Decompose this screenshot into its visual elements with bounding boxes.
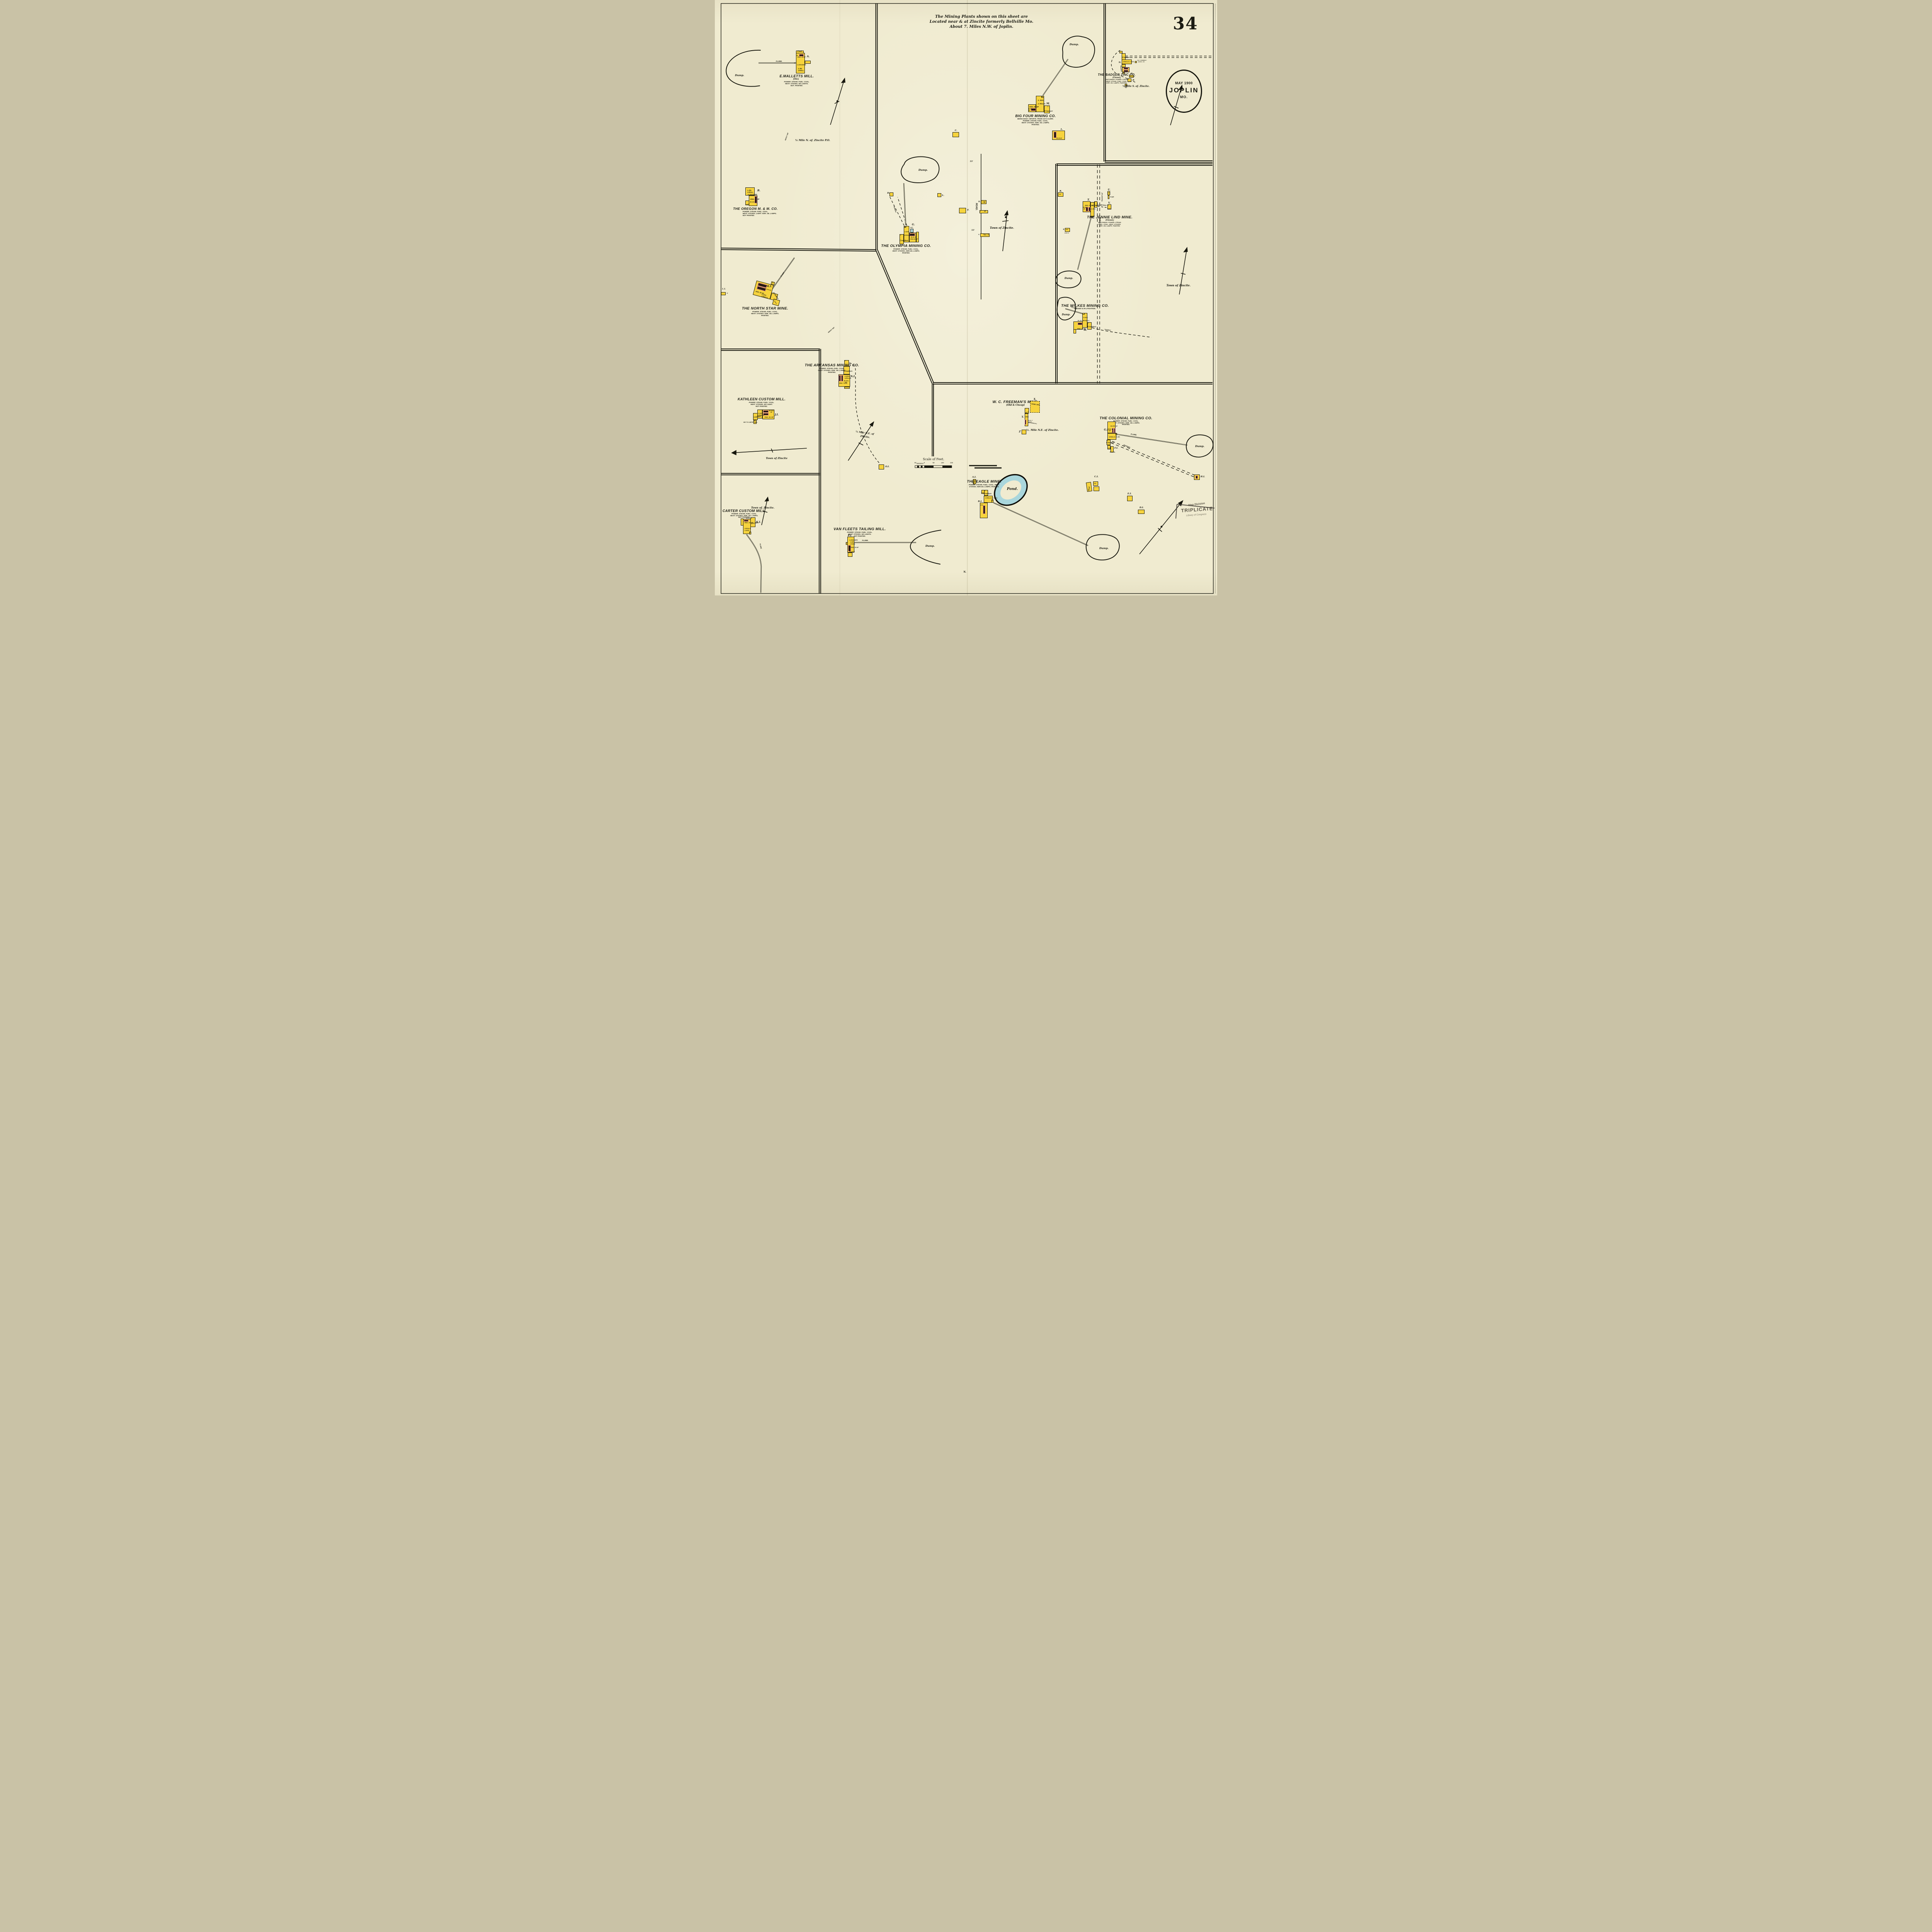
dim-label: 40' bbox=[770, 412, 772, 413]
dim-label: IR.CH.30' bbox=[849, 551, 855, 553]
machinery-label: ENG.60.HP bbox=[910, 239, 918, 240]
scale-tick: 150 bbox=[950, 462, 953, 464]
northstar-title: THE NORTH STAR MINE. bbox=[742, 307, 788, 311]
machinery-label: 2.ROLLS. 2.JIGS. bbox=[985, 497, 998, 499]
boiler bbox=[841, 375, 843, 381]
crusher-label: Crusher bbox=[1044, 111, 1053, 112]
building-letter: D. bbox=[887, 192, 890, 195]
dim-label: 60 bbox=[1116, 434, 1117, 435]
building-letter: N. bbox=[1119, 62, 1121, 64]
machinery-label: 3.ROLLS. 2.JIGS. bbox=[1123, 61, 1134, 63]
machinery-label: 1.ROLL. bbox=[850, 544, 855, 545]
site-info: NOT PAINTED. bbox=[743, 215, 755, 216]
crusher-label: Crusher. bbox=[1088, 326, 1097, 328]
building-letter: S bbox=[1063, 229, 1065, 231]
coal-label: Coal. bbox=[798, 51, 803, 53]
building-letter: D.I. bbox=[1139, 507, 1144, 509]
story-label: 2 bbox=[985, 490, 985, 492]
building-letter: H. bbox=[978, 234, 980, 235]
building-f bbox=[959, 208, 966, 213]
distance-note: ¼ Mile N. of. Zincite P.O. bbox=[795, 139, 830, 142]
building-letter: X. bbox=[1034, 398, 1036, 401]
building-letter: J. bbox=[980, 211, 981, 212]
dump-label: Dump. bbox=[1099, 547, 1109, 550]
office-label: Off. bbox=[983, 201, 986, 203]
boiler bbox=[983, 505, 985, 514]
town-label: Town of Zincite. bbox=[1167, 284, 1191, 287]
site-info: PAINTED. bbox=[828, 372, 836, 373]
pump-label: PUMP. bbox=[1110, 197, 1114, 198]
dump-label: Dump. bbox=[735, 74, 744, 77]
machinery-label: 2.JIGS. bbox=[745, 530, 750, 532]
dim-label: IR.CH. 35' bbox=[911, 237, 917, 238]
machinery-label: IR.CH.25' bbox=[750, 202, 757, 203]
building-d bbox=[889, 192, 893, 196]
building-ei bbox=[1127, 496, 1133, 501]
site-info: KER. OIL LAMPS. PAINTED. bbox=[1106, 83, 1127, 84]
building-letter: D. bbox=[727, 293, 728, 294]
dim-label: 60' bbox=[992, 500, 993, 502]
distance-note: ¼ Mile S. of. Zincite. bbox=[1122, 85, 1150, 88]
building-letter: M.I. bbox=[766, 285, 772, 288]
building-letter: L. bbox=[942, 195, 944, 197]
boiler bbox=[1025, 420, 1026, 425]
building-letter: E.I. bbox=[1128, 493, 1132, 495]
dim-label: 30' bbox=[796, 55, 798, 56]
building-letter: V. bbox=[1108, 202, 1111, 204]
building-badger-mid bbox=[1122, 64, 1126, 67]
sanborn-sheet: The Mining Plants shown on this sheet ar… bbox=[715, 0, 1217, 595]
scale-title: Scale of Feet. bbox=[923, 458, 944, 461]
machinery-label: 1.ROLL. bbox=[798, 70, 804, 71]
boiler bbox=[839, 375, 841, 381]
building-letter: B.I. bbox=[978, 501, 982, 503]
building-letter: T. bbox=[1087, 199, 1090, 201]
bigfour-title: BIG FOUR MINING CO. bbox=[1015, 114, 1056, 118]
boiler bbox=[744, 520, 748, 522]
machinery-label: ENG. 40. HP bbox=[1029, 106, 1039, 108]
scale-tick: 0 bbox=[924, 462, 925, 464]
machinery-label: 1.CRUSHER. bbox=[748, 194, 757, 196]
machinery-label: 3.ROLLS. bbox=[904, 235, 911, 236]
map-linework bbox=[715, 0, 1217, 595]
building-letter: P. bbox=[1133, 80, 1134, 82]
boiler bbox=[1078, 323, 1082, 325]
story-label: 2 bbox=[1108, 205, 1109, 206]
building-vanfleets-annex bbox=[848, 553, 852, 557]
town-label: Town of Zincite. bbox=[990, 226, 1014, 229]
dump-label: Dump. bbox=[1065, 277, 1073, 280]
dim-label: 60' bbox=[904, 226, 906, 228]
oval-date: MAY 1900 bbox=[1175, 82, 1193, 85]
building-letter: A.I. bbox=[972, 476, 976, 479]
building-letter: F. bbox=[967, 209, 969, 212]
vanfleets-title: VAN FLEETS TAILING MILL. bbox=[833, 527, 886, 531]
wilkes-sub: CLOSED & IN LITIGATION. bbox=[1074, 308, 1095, 310]
machinery-label: 2.JIGS. bbox=[1083, 317, 1088, 319]
machinery-label: 1.CRUSHER. bbox=[797, 64, 806, 66]
north-arrows bbox=[732, 78, 1187, 554]
machinery-label: 3.ROLLS. 2.JIG. bbox=[1109, 436, 1120, 438]
malletts-title: E.MALLETTS MILL. bbox=[780, 75, 814, 78]
blacksmith-label: Bl.Sm. bbox=[1110, 451, 1116, 453]
dim-label: 40' bbox=[750, 532, 751, 534]
dump-label: Dump. bbox=[1070, 43, 1079, 46]
vacant-store-label: Vac. S. bbox=[983, 234, 989, 236]
office-label: OFF. bbox=[1066, 229, 1068, 230]
dim-label: IR.CH.30' bbox=[1056, 138, 1062, 139]
story-label: 2 bbox=[1048, 106, 1048, 107]
building-letter: R. bbox=[1060, 190, 1062, 193]
carter-title: CARTER CUSTOM MILL. bbox=[723, 509, 766, 513]
crusher-label: Crusher. bbox=[1106, 442, 1114, 444]
dim-label: 40' bbox=[794, 63, 796, 64]
machinery-label: 2.ROLLS. bbox=[1083, 320, 1090, 322]
building-l2 bbox=[937, 193, 941, 197]
building-oi bbox=[879, 464, 884, 469]
site-info: NOT PAINTED. bbox=[755, 406, 767, 407]
distance-note: ½. Mile N.E. of Zincite. bbox=[1026, 429, 1059, 432]
sheet-note-line: About 7. Miles N.W. of Joplin. bbox=[950, 25, 1014, 29]
oval-state: MO. bbox=[1180, 95, 1188, 99]
building-wilkes-hoist bbox=[1082, 313, 1085, 315]
town-label: Town of. Zincite. bbox=[751, 507, 774, 509]
olympia-title: THE OLYMPIA MINING CO. bbox=[881, 244, 931, 248]
dim-label: IR.CH'S. 30' bbox=[1123, 71, 1130, 73]
story-label: 2 bbox=[1095, 202, 1095, 203]
boiler bbox=[1124, 68, 1128, 70]
building-letter: L. bbox=[1061, 129, 1063, 131]
machinery-label: ENG. 25 HP bbox=[798, 57, 806, 58]
flume-label: FLUME. bbox=[862, 540, 868, 541]
story-label: 2 bbox=[1107, 440, 1108, 441]
crusher-label: Crusher. bbox=[983, 493, 992, 495]
story-label: 2 bbox=[900, 235, 901, 236]
blacksmith-label: Bl.Sm. bbox=[1130, 76, 1135, 77]
scale-tick: 100 bbox=[941, 462, 944, 464]
machinery-label: 1.ROLL. bbox=[747, 192, 753, 193]
scale-bar bbox=[915, 466, 952, 468]
scale-tick: 50 bbox=[932, 462, 934, 464]
engraver-mark: N. bbox=[963, 571, 966, 573]
town-label: Town of Zincite bbox=[766, 457, 787, 460]
dim-label: 40' bbox=[846, 543, 847, 544]
boiler bbox=[1196, 476, 1198, 479]
building-letter: J.I. bbox=[775, 413, 779, 416]
kathleen-title: KATHLEEN CUSTOM MILL. bbox=[738, 398, 786, 401]
dwelling-label: D bbox=[984, 211, 986, 213]
building-letter: C.I. bbox=[1094, 476, 1099, 478]
building-letter: F.I. bbox=[1114, 447, 1118, 450]
building-misc bbox=[1094, 486, 1099, 491]
boiler bbox=[1088, 207, 1090, 211]
boiler bbox=[1114, 428, 1116, 433]
building-vacant-gasoline-house bbox=[1135, 61, 1137, 63]
machinery-label: ENG. bbox=[1108, 192, 1111, 194]
sheet-number: 34 bbox=[1173, 15, 1198, 32]
building-letter: L.I. bbox=[722, 288, 726, 290]
distance-note: 880' TO CARTER MILL. bbox=[743, 422, 758, 423]
building-letter: H.I. bbox=[1201, 476, 1205, 478]
building-letter: U. bbox=[1108, 189, 1111, 191]
planked-label: (PLANKED) bbox=[1101, 193, 1103, 201]
building-c bbox=[952, 132, 959, 137]
arkansas-title: THE ARKANSAS MINING CO. bbox=[805, 364, 859, 367]
building-malletts-wing bbox=[805, 61, 811, 64]
oval-city: JOPLIN bbox=[1169, 87, 1199, 94]
crusher-label: Crusher bbox=[1122, 57, 1129, 59]
water-tank-label: W.T. bbox=[910, 227, 913, 229]
story-label: 2 bbox=[845, 361, 845, 362]
oregon-title: THE OREGON M. & M. CO. bbox=[733, 207, 778, 211]
dim-label: 60' bbox=[772, 282, 774, 284]
building-letter: W. bbox=[1083, 328, 1087, 331]
tramway-label: TRAMWAY bbox=[1120, 65, 1122, 72]
building-letter: O. bbox=[1131, 73, 1133, 75]
machinery-label: HP bbox=[1109, 430, 1111, 432]
building-li bbox=[721, 292, 726, 295]
shaft-label: SHAFT. bbox=[1108, 208, 1112, 209]
water-tank bbox=[910, 229, 913, 233]
shaft-label: SHAFT. bbox=[1128, 81, 1131, 82]
machinery-label: ENG. 20 HP bbox=[851, 547, 859, 549]
building-letter: M. bbox=[1046, 102, 1050, 105]
machinery-label: ENG. bbox=[1026, 417, 1029, 418]
machinery-label: 2. ROLLS. bbox=[1038, 103, 1046, 105]
site-info: STOVES. KER.OIL LAMPS. PAINTED. bbox=[969, 486, 999, 488]
dump-label: Dump. bbox=[918, 169, 928, 172]
machinery-label: ENG. bbox=[981, 505, 983, 506]
flume-label: FLUME. bbox=[776, 61, 782, 62]
building-di bbox=[1138, 510, 1145, 514]
building-z bbox=[1022, 430, 1026, 434]
boiler bbox=[1054, 132, 1056, 138]
building-letter: B. bbox=[757, 189, 760, 192]
dump-label: Dump. bbox=[1195, 445, 1204, 448]
dim-label: 55' bbox=[971, 230, 975, 231]
machinery-label: 2.JIGS. bbox=[905, 231, 910, 233]
building-letter: G. bbox=[912, 223, 915, 226]
building-arkansas-tab bbox=[844, 387, 850, 389]
eagle-title: THE EAGLE MINE. bbox=[967, 480, 1001, 484]
story-label: 2 bbox=[1088, 323, 1089, 324]
boiler bbox=[848, 545, 851, 551]
machinery-label: 2. JIGS. bbox=[1038, 100, 1044, 101]
site-info: PAINTED. bbox=[902, 252, 910, 254]
building-letter: Z bbox=[1019, 431, 1020, 433]
site-info: NOT. PAINTED. bbox=[791, 85, 803, 87]
road-label: ROAD. bbox=[975, 203, 978, 210]
pond-label: Pond. bbox=[1007, 488, 1018, 491]
building-letter: K.I. bbox=[756, 521, 761, 524]
site-info: PAINTED. bbox=[1122, 424, 1130, 425]
freeman-sub: (Old & Cheap) bbox=[1006, 404, 1025, 406]
dim-label: 30' bbox=[1029, 110, 1030, 111]
dim-label: 30' bbox=[1083, 209, 1085, 210]
building-letter: O.I. bbox=[885, 466, 889, 468]
oil-label: OIL bbox=[1059, 194, 1061, 195]
building-u-pump bbox=[1108, 195, 1109, 199]
dim-label: IR.CH. 20' bbox=[746, 518, 752, 519]
story-label: 2 bbox=[1128, 79, 1129, 80]
building-letter: Y. bbox=[1022, 416, 1024, 418]
panel-borders bbox=[721, 3, 1213, 594]
machinery-label: 2.JIGS. bbox=[1091, 209, 1096, 210]
dim-label: 80' bbox=[1042, 96, 1043, 97]
sheet-note-line: Located near & at Zincite formerly Bellv… bbox=[930, 20, 1033, 24]
annex-label: HOW. D. bbox=[1065, 233, 1069, 234]
site-info: PAINTED. bbox=[1032, 124, 1039, 126]
malletts-sub: (Old.) bbox=[793, 78, 799, 81]
sheet-note-line: The Mining Plants shown on this sheet ar… bbox=[935, 15, 1028, 19]
building-letter: N.I. bbox=[850, 375, 855, 378]
crusher-label: Crusher. bbox=[900, 240, 909, 242]
dim-label: IR.CH'S. 30' bbox=[1111, 426, 1117, 427]
date-oval: MAY 1900 JOPLIN MO. bbox=[1166, 70, 1202, 113]
building-letter: C. bbox=[955, 130, 957, 132]
office-label: OFF. bbox=[1094, 483, 1097, 484]
dim-label: 55' bbox=[970, 161, 973, 163]
machinery-label: ENG. 25 HP bbox=[750, 199, 759, 200]
site-info: NOT PAINTED. bbox=[854, 536, 866, 537]
dump-label: Dump. bbox=[1062, 314, 1070, 316]
scale-tick: 10 bbox=[922, 463, 923, 464]
machinery-label: ENG. 25. HP bbox=[765, 417, 774, 418]
dump-label: Dump. bbox=[925, 545, 935, 548]
site-info: KER. OIL LAMPS. PAINTED. bbox=[1099, 225, 1120, 227]
boiler bbox=[763, 410, 769, 413]
building-letter: K. bbox=[978, 201, 981, 203]
vacant-note: GASOL. HO. bbox=[1138, 61, 1145, 63]
building-letter: A. bbox=[807, 55, 810, 58]
machinery-label: ENG. 75 HP bbox=[839, 383, 847, 384]
site-info: PAINTED. bbox=[761, 315, 769, 316]
